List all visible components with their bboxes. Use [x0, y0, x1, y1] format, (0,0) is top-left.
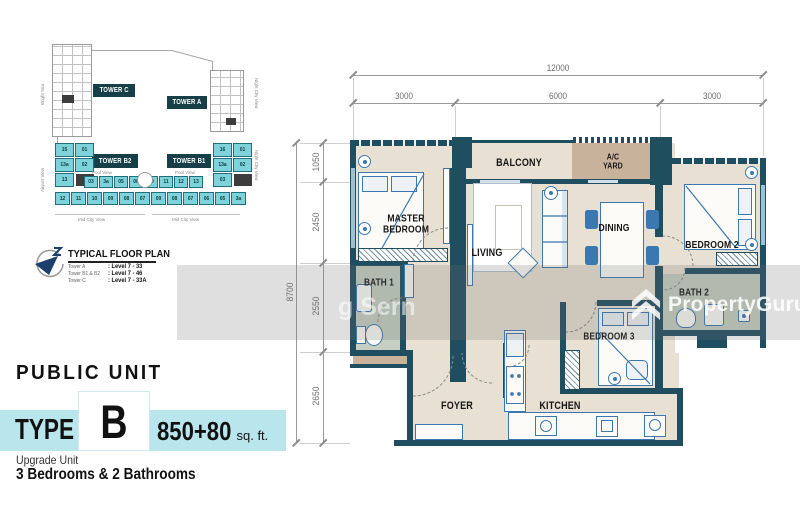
site-unit: 09 [151, 192, 166, 205]
room-label-dining: DINING [598, 222, 629, 234]
site-unit: 10 [87, 192, 102, 205]
dim-height-seg: 1050 [311, 146, 321, 178]
legend-row-level: : Level 7 - 33 [108, 263, 147, 270]
room-label-foyer: FOYER [441, 400, 473, 412]
site-unit: 12 [174, 176, 188, 188]
unit-category: PUBLIC UNIT [16, 362, 170, 385]
dim-height-seg: 2550 [311, 290, 321, 322]
tower-b2-label: TOWER B2 [92, 154, 138, 168]
view-label-left-top: Bright Sea [40, 84, 45, 105]
legend-row-tower: Tower A [68, 264, 88, 270]
site-unit: 07 [183, 192, 198, 205]
type-letter: B [100, 394, 127, 449]
watermark-text: g Sern [338, 293, 416, 322]
site-unit: 08 [119, 192, 134, 205]
legend-title: TYPICAL FLOOR PLAN [68, 248, 184, 260]
site-unit: 15 [55, 143, 74, 157]
site-bottom-line-right [152, 214, 240, 215]
propertyguru-logo-icon [628, 286, 664, 324]
tower-b1-core [234, 174, 252, 186]
site-outline-slant [172, 50, 214, 62]
site-unit: 05 [114, 176, 128, 188]
site-unit: 06 [199, 192, 214, 205]
site-unit: 01 [233, 143, 252, 157]
room-label-kitchen: KITCHEN [539, 400, 580, 412]
site-unit: 05 [215, 192, 230, 205]
site-unit: 13 [189, 176, 203, 188]
dim-height-seg: 2650 [311, 380, 321, 412]
legend-row-level: : Level 7 - 46 [108, 270, 147, 277]
site-unit: 08 [167, 192, 182, 205]
site-pool-feature [137, 172, 153, 188]
site-unit: 13a [55, 158, 74, 172]
tower-c-core [62, 95, 74, 103]
site-unit: 11 [71, 192, 86, 205]
room-label-living: LIVING [471, 247, 502, 259]
propertyguru-wordmark: PropertyGuru [668, 293, 800, 317]
dim-height-total: 8700 [285, 276, 295, 308]
room-label-balcony: BALCONY [496, 157, 542, 169]
legend-row-tower: Tower C [68, 278, 88, 284]
room-label-master-bedroom: MASTER BEDROOM [379, 213, 433, 234]
tower-b1-label: TOWER B1 [167, 154, 211, 168]
view-label-pool-left: Pool View [92, 170, 112, 175]
unit-area: 850+80 sq. ft. [157, 416, 268, 447]
dim-width-seg: 6000 [549, 91, 567, 101]
view-label-bottom-left: Mid City View [78, 217, 105, 222]
site-unit: 02 [233, 158, 252, 172]
site-unit: 16 [213, 143, 232, 157]
dim-width-seg: 3000 [395, 91, 413, 101]
site-unit: 03 [213, 173, 232, 187]
dim-height-seg: 2450 [311, 206, 321, 238]
site-unit: 13 [55, 173, 74, 187]
site-unit: 01 [75, 143, 94, 157]
site-unit: 11 [159, 176, 173, 188]
site-unit: 03 [84, 176, 98, 188]
view-label-right-bottom: Night City View [254, 150, 259, 180]
tower-c-block [52, 44, 92, 137]
tower-c-label: TOWER C [93, 84, 135, 97]
room-label-bedroom2: BEDROOM 2 [685, 239, 739, 251]
view-label-pool-right: Pool View [175, 170, 195, 175]
compass-icon [28, 245, 66, 283]
unit-subtitle: Upgrade Unit [16, 453, 87, 467]
dim-width-total: 12000 [547, 63, 570, 73]
site-unit: 3a [99, 176, 113, 188]
tower-a-core [226, 118, 236, 125]
legend-row-level: : Level 7 - 33A [108, 277, 152, 284]
type-letter-box: B [78, 391, 150, 451]
view-label-bottom-right: Mid City View [172, 217, 199, 222]
site-unit: 07 [135, 192, 150, 205]
room-label-bedroom3: BEDROOM 3 [583, 332, 634, 343]
site-unit: 12 [55, 192, 70, 205]
site-unit: 09 [103, 192, 118, 205]
room-label-bath1: BATH 1 [364, 278, 394, 289]
room-label-ac-yard: A/C YARD [599, 152, 627, 169]
view-label-left-bottom: Airport View [40, 168, 45, 192]
view-label-right-top: Night City View [254, 78, 259, 108]
unit-description: 3 Bedrooms & 2 Bathrooms [16, 466, 220, 484]
site-unit: 3a [231, 192, 246, 205]
floor-plan-poster: TOWER C TOWER A TOWER B2 TOWER B1 150113… [0, 0, 800, 527]
site-bottom-line-left [55, 214, 145, 215]
legend-row-tower: Tower B1 & B2 [68, 271, 104, 277]
tower-a-label: TOWER A [167, 96, 207, 109]
site-bottom-row-units: 12111009080709080706053a [55, 192, 253, 206]
site-unit: 13a [213, 158, 232, 172]
dim-width-seg: 3000 [703, 91, 721, 101]
